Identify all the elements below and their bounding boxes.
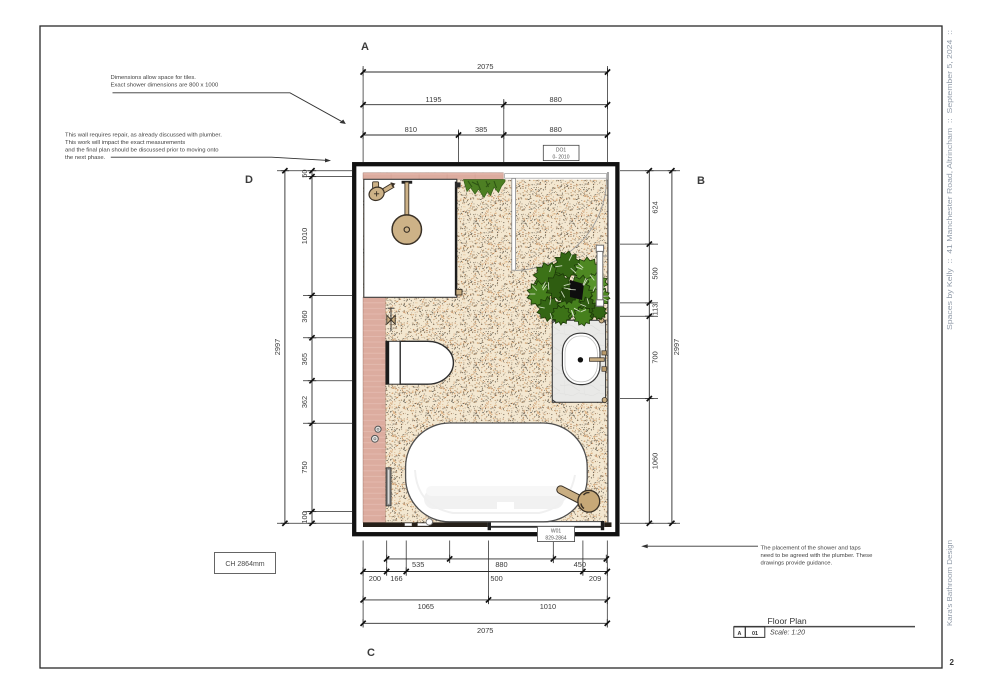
svg-text:700: 700 bbox=[651, 351, 660, 363]
svg-text:2: 2 bbox=[950, 658, 955, 667]
svg-text:CH 2864mm: CH 2864mm bbox=[225, 561, 264, 568]
svg-text:01: 01 bbox=[752, 631, 758, 637]
svg-text:1060: 1060 bbox=[651, 453, 660, 469]
svg-text:750: 750 bbox=[300, 461, 309, 473]
svg-text:2075: 2075 bbox=[477, 626, 493, 635]
svg-text:362: 362 bbox=[300, 396, 309, 408]
svg-text:450: 450 bbox=[574, 560, 586, 569]
svg-text:W01: W01 bbox=[551, 529, 562, 535]
svg-text:C: C bbox=[367, 647, 375, 659]
svg-text:A: A bbox=[738, 631, 742, 637]
svg-text:113: 113 bbox=[651, 304, 660, 316]
svg-text:500: 500 bbox=[490, 574, 502, 583]
svg-text:1010: 1010 bbox=[300, 228, 309, 244]
svg-text:100: 100 bbox=[300, 511, 309, 523]
svg-text:A: A bbox=[361, 41, 369, 53]
svg-text:200: 200 bbox=[369, 574, 381, 583]
svg-text:2997: 2997 bbox=[672, 339, 681, 355]
svg-text:This wall requires repair, as: This wall requires repair, as already di… bbox=[65, 132, 222, 138]
svg-text:166: 166 bbox=[390, 574, 402, 583]
svg-text:The placement of the shower an: The placement of the shower and taps bbox=[761, 545, 861, 551]
svg-text:829-2864: 829-2864 bbox=[545, 536, 566, 542]
svg-text:drawings provide guidance.: drawings provide guidance. bbox=[761, 561, 833, 567]
svg-text:Spaces by Kelly :: 41 Manche: Spaces by Kelly :: 41 Manchester Road, A… bbox=[945, 30, 954, 330]
svg-text:need to be agreed with the plu: need to be agreed with the plumber. Thes… bbox=[761, 553, 874, 559]
svg-text:DO1: DO1 bbox=[556, 148, 567, 154]
svg-text:1195: 1195 bbox=[426, 95, 442, 104]
svg-text:2997: 2997 bbox=[273, 339, 282, 355]
svg-text:880: 880 bbox=[495, 560, 507, 569]
svg-text:535: 535 bbox=[412, 560, 424, 569]
svg-text:Scale: 1:20: Scale: 1:20 bbox=[770, 630, 805, 637]
svg-text:209: 209 bbox=[589, 574, 601, 583]
svg-text:D: D bbox=[245, 174, 253, 186]
svg-text:0- 2010: 0- 2010 bbox=[553, 154, 570, 160]
svg-text:365: 365 bbox=[300, 353, 309, 365]
svg-text:2075: 2075 bbox=[477, 62, 493, 71]
svg-text:Dimensions allow space for til: Dimensions allow space for tiles. bbox=[111, 75, 197, 81]
svg-text:B: B bbox=[697, 175, 705, 187]
svg-text:This work will impact the exac: This work will impact the exact measurem… bbox=[65, 140, 185, 146]
svg-text:624: 624 bbox=[651, 201, 660, 213]
svg-text:500: 500 bbox=[651, 267, 660, 279]
svg-text:the next phase.: the next phase. bbox=[65, 155, 106, 161]
svg-text:880: 880 bbox=[550, 95, 562, 104]
svg-text:385: 385 bbox=[475, 125, 487, 134]
svg-text:Kara's Bathroom Design: Kara's Bathroom Design bbox=[945, 540, 954, 626]
svg-text:Floor Plan: Floor Plan bbox=[768, 616, 807, 626]
svg-text:and the final plan should be d: and the final plan should be discussed p… bbox=[65, 147, 219, 153]
svg-text:880: 880 bbox=[550, 125, 562, 134]
svg-text:1065: 1065 bbox=[418, 602, 434, 611]
svg-text:810: 810 bbox=[405, 125, 417, 134]
svg-text:360: 360 bbox=[300, 310, 309, 322]
svg-text:Exact shower dimensions are 80: Exact shower dimensions are 800 x 1000 bbox=[111, 83, 219, 89]
svg-text:1010: 1010 bbox=[540, 602, 556, 611]
svg-text:50: 50 bbox=[300, 170, 309, 178]
